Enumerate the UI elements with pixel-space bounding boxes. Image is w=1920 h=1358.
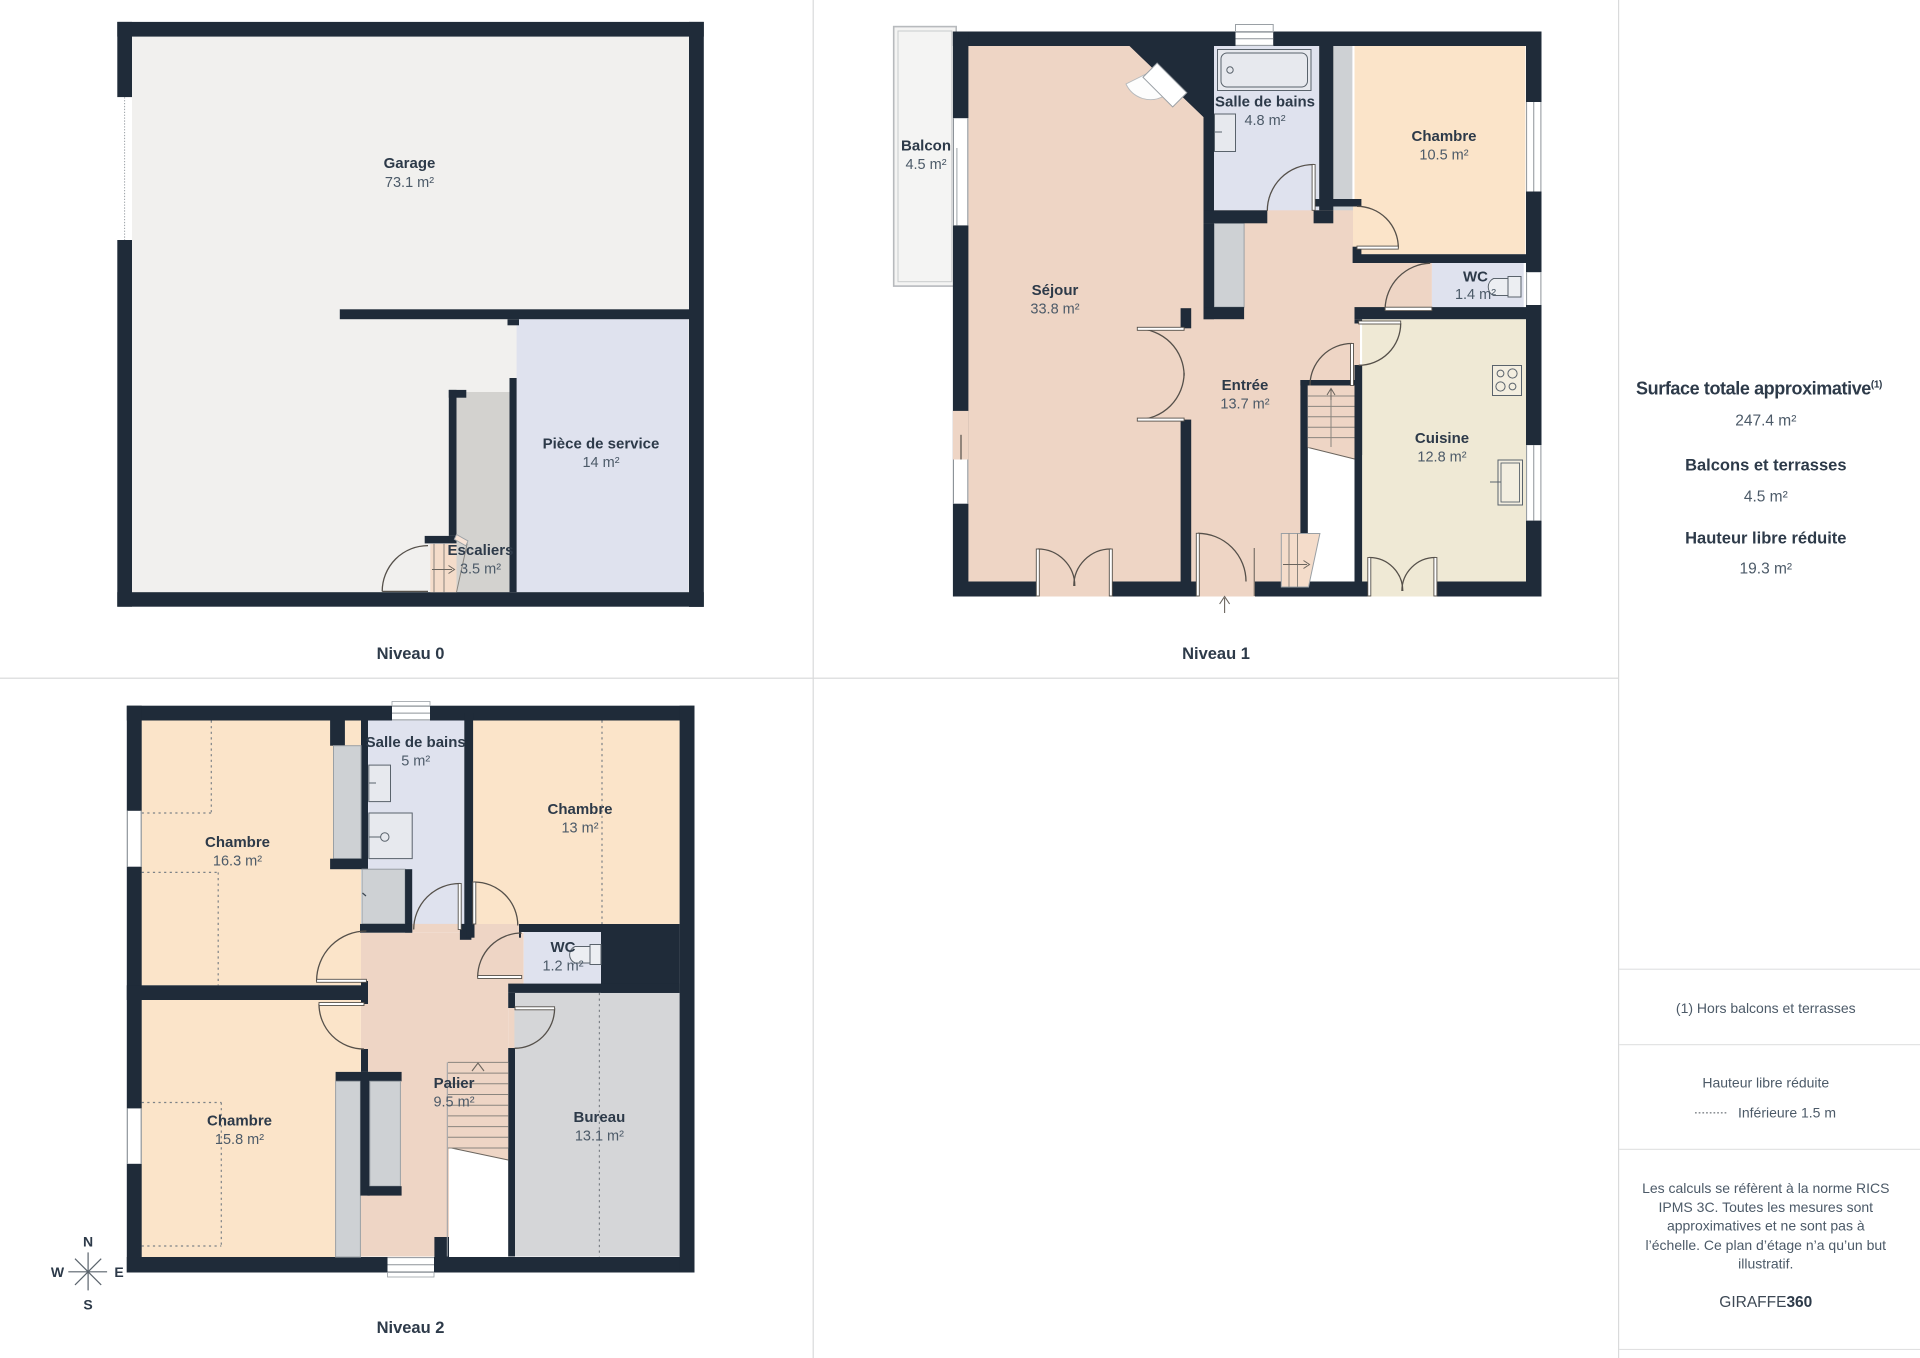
svg-text:Escaliers: Escaliers <box>448 542 514 559</box>
svg-text:14 m²: 14 m² <box>582 455 619 471</box>
svg-text:Palier: Palier <box>434 1075 475 1092</box>
svg-text:10.5 m²: 10.5 m² <box>1419 148 1468 164</box>
svg-text:Niveau 1: Niveau 1 <box>1182 645 1250 663</box>
svg-text:3.5 m²: 3.5 m² <box>460 562 501 578</box>
svg-text:12.8 m²: 12.8 m² <box>1417 450 1466 466</box>
svg-text:Surface totale approximative(1: Surface totale approximative(1) <box>1636 379 1882 399</box>
svg-text:l’échelle. Ce plan d’étage n’a: l’échelle. Ce plan d’étage n’a qu’un but <box>1646 1237 1887 1253</box>
svg-text:Pièce de service: Pièce de service <box>543 436 660 453</box>
svg-text:13 m²: 13 m² <box>561 821 598 837</box>
svg-text:4.5 m²: 4.5 m² <box>1744 489 1788 506</box>
svg-text:(1) Hors balcons et terrasses: (1) Hors balcons et terrasses <box>1676 1000 1856 1016</box>
svg-text:N: N <box>83 1234 93 1250</box>
svg-text:Hauteur libre réduite: Hauteur libre réduite <box>1685 529 1846 547</box>
svg-text:73.1 m²: 73.1 m² <box>385 175 434 191</box>
svg-text:15.8 m²: 15.8 m² <box>215 1132 264 1148</box>
svg-text:Chambre: Chambre <box>1411 128 1476 145</box>
svg-text:E: E <box>114 1264 123 1280</box>
svg-text:16.3 m²: 16.3 m² <box>213 854 262 870</box>
svg-text:Les calculs se réfèrent à la n: Les calculs se réfèrent à la norme RICS <box>1642 1180 1889 1196</box>
svg-text:Balcons et terrasses: Balcons et terrasses <box>1685 457 1846 475</box>
svg-text:Bureau: Bureau <box>574 1109 626 1126</box>
svg-text:Salle de bains: Salle de bains <box>366 734 466 751</box>
svg-text:W: W <box>51 1264 65 1280</box>
svg-text:approximatives et ne sont pas: approximatives et ne sont pas à <box>1667 1217 1865 1233</box>
svg-text:Chambre: Chambre <box>547 801 612 818</box>
svg-text:illustratif.: illustratif. <box>1738 1255 1793 1271</box>
svg-text:Niveau 0: Niveau 0 <box>377 645 445 663</box>
svg-text:Salle de bains: Salle de bains <box>1215 94 1315 111</box>
svg-text:13.7 m²: 13.7 m² <box>1220 397 1269 413</box>
svg-text:Entrée: Entrée <box>1222 377 1269 394</box>
svg-text:4.8 m²: 4.8 m² <box>1244 113 1285 129</box>
svg-text:Inférieure 1.5 m: Inférieure 1.5 m <box>1738 1105 1836 1121</box>
svg-text:Cuisine: Cuisine <box>1415 430 1469 447</box>
svg-text:Chambre: Chambre <box>205 834 270 851</box>
svg-text:Chambre: Chambre <box>207 1113 272 1130</box>
svg-text:S: S <box>83 1297 92 1313</box>
svg-text:Séjour: Séjour <box>1032 282 1079 299</box>
svg-text:13.1 m²: 13.1 m² <box>575 1129 624 1145</box>
svg-text:1.2 m²: 1.2 m² <box>542 959 583 975</box>
svg-text:Niveau 2: Niveau 2 <box>377 1319 445 1337</box>
svg-text:WC: WC <box>551 939 576 956</box>
svg-text:IPMS 3C. Toutes les mesures so: IPMS 3C. Toutes les mesures sont <box>1659 1199 1874 1215</box>
svg-text:9.5 m²: 9.5 m² <box>433 1095 474 1111</box>
svg-text:Garage: Garage <box>384 155 436 172</box>
svg-text:GIRAFFE360: GIRAFFE360 <box>1719 1294 1812 1311</box>
svg-text:Balcon: Balcon <box>901 138 951 155</box>
svg-text:5 m²: 5 m² <box>401 754 430 770</box>
svg-text:247.4 m²: 247.4 m² <box>1735 412 1796 429</box>
svg-text:1.4 m²: 1.4 m² <box>1455 287 1496 303</box>
svg-text:19.3 m²: 19.3 m² <box>1740 561 1793 578</box>
svg-text:33.8 m²: 33.8 m² <box>1030 302 1079 318</box>
svg-text:Hauteur libre réduite: Hauteur libre réduite <box>1702 1075 1829 1091</box>
svg-text:WC: WC <box>1463 269 1488 286</box>
svg-text:4.5 m²: 4.5 m² <box>905 157 946 173</box>
